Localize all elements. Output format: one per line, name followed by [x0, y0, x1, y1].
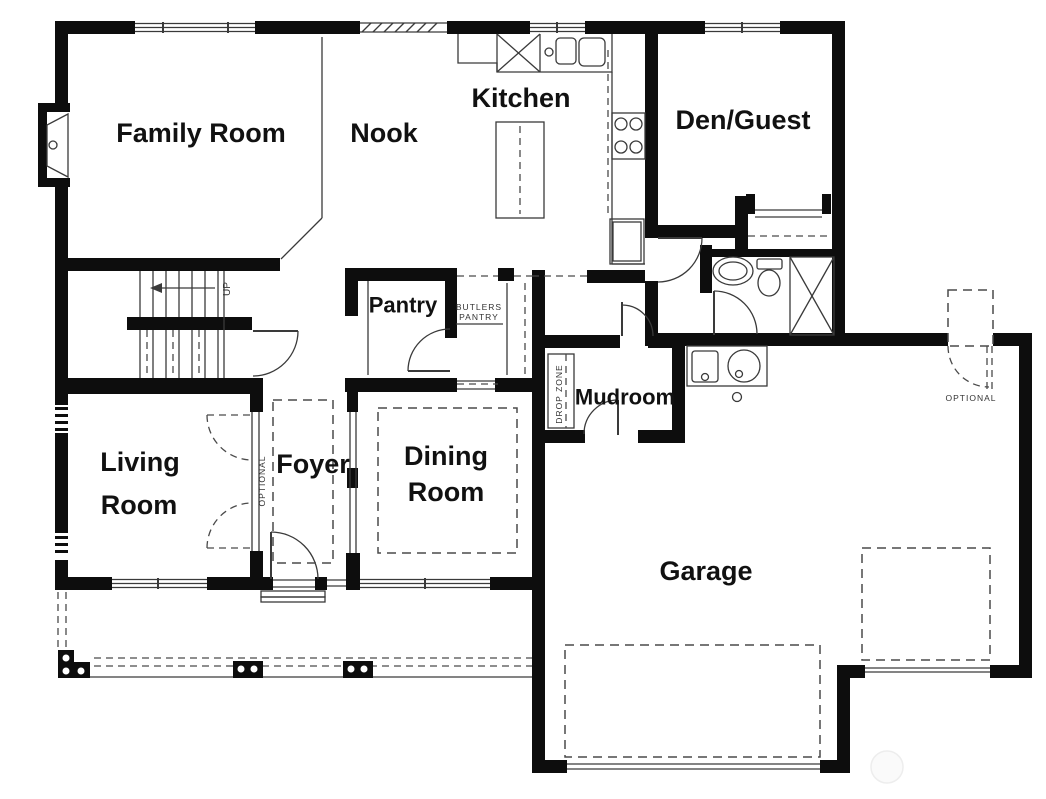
kitchen-sink-icon: [545, 38, 605, 66]
room-label-kitchen: Kitchen: [471, 83, 570, 113]
den-window: [705, 22, 780, 33]
hall-door: [253, 331, 298, 376]
toilet-icon: [757, 259, 782, 296]
foyer-window: [327, 580, 346, 586]
front-steps: [261, 591, 325, 597]
foyer-ceiling-feature: [273, 400, 333, 563]
watermark-circle: [871, 751, 903, 783]
den-door: [658, 238, 702, 282]
porch-post-icon: [58, 650, 90, 678]
shower-icon: [790, 257, 834, 335]
porch-post-icon: [343, 661, 373, 678]
pantry-door: [408, 329, 450, 371]
room-label-den-guest: Den/Guest: [675, 105, 810, 135]
bathroom-door: [714, 291, 757, 335]
room-label-family-room: Family Room: [116, 118, 286, 148]
optional-exterior-door: [948, 290, 993, 389]
dining-room-front-window: [360, 578, 490, 589]
garage-fixtures: [565, 346, 990, 783]
room-label-foyer: Foyer: [276, 449, 350, 479]
butlers-pantry-label-line2: PANTRY: [459, 312, 499, 322]
room-label-mudroom: Mudroom: [575, 385, 675, 410]
doors: [207, 238, 993, 602]
single-garage-door: [862, 548, 990, 672]
dining-cased-opening: [457, 381, 495, 389]
double-garage-door: [565, 645, 820, 769]
kitchen-fixtures: [281, 34, 645, 264]
kitchen-island: [496, 122, 544, 218]
stairs-up-label: UP: [222, 282, 233, 296]
optional-french-doors: [207, 412, 259, 551]
den-closet: [748, 210, 830, 236]
fireplace-gas-valve-icon: [49, 141, 57, 149]
room-label-pantry: Pantry: [369, 293, 438, 318]
room-label-dining-line2: Room: [408, 477, 485, 507]
water-heater-icon: [728, 350, 760, 402]
garage-optional-label: OPTIONAL: [946, 393, 997, 403]
living-room-front-window: [112, 578, 207, 589]
foyer-optional-label: OPTIONAL: [257, 456, 267, 507]
room-label-dining-line1: Dining: [404, 441, 488, 471]
room-label-nook: Nook: [350, 118, 418, 148]
room-label-living-line1: Living: [100, 447, 180, 477]
kitchen-corner-cabinet-icon: [497, 34, 540, 72]
porch: [58, 592, 532, 678]
butlers-pantry-label-line1: BUTLERS: [456, 302, 502, 312]
porch-post-icon: [233, 661, 263, 678]
front-door: [261, 532, 325, 602]
utility-sink-icon: [687, 346, 767, 386]
room-label-living-line2: Room: [101, 490, 178, 520]
kitchen-window: [530, 22, 585, 33]
nook-window: [360, 23, 447, 32]
bathroom-vanity-icon: [713, 257, 753, 285]
floor-plan-page: UP: [0, 0, 1046, 799]
family-room-window: [135, 22, 255, 33]
floor-plan-canvas: UP: [0, 0, 1046, 799]
cooktop-icon: [612, 113, 645, 159]
drop-zone-label: DROP ZONE: [554, 364, 564, 423]
refrigerator-icon: [610, 219, 644, 264]
fireplace: [38, 103, 70, 187]
room-label-garage: Garage: [659, 556, 752, 586]
